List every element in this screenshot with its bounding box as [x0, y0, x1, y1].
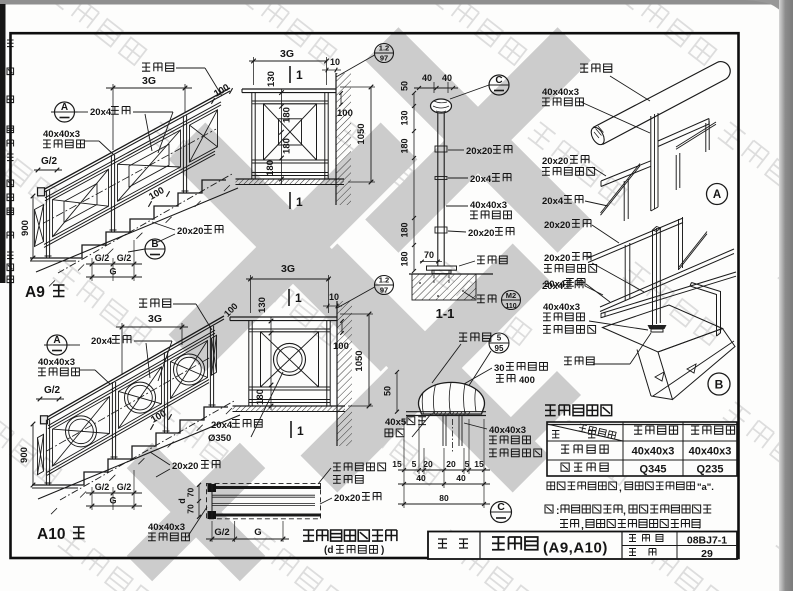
svg-text:C: C [495, 75, 502, 86]
svg-text:130: 130 [400, 110, 410, 125]
svg-text:20x20: 20x20 [334, 493, 360, 504]
svg-text:1.2: 1.2 [379, 44, 389, 53]
svg-text:50: 50 [400, 81, 410, 91]
svg-text:"a".: "a". [697, 482, 714, 493]
svg-text:40: 40 [422, 73, 432, 83]
svg-text:,: , [581, 520, 584, 532]
svg-text:400: 400 [519, 375, 535, 386]
svg-text:130: 130 [257, 297, 268, 313]
svg-text:40x40x3: 40x40x3 [632, 446, 675, 458]
svg-text:1: 1 [295, 291, 302, 305]
svg-text:G/2: G/2 [95, 253, 110, 263]
svg-text:70: 70 [424, 250, 434, 260]
svg-text:(A9,A10): (A9,A10) [543, 540, 608, 557]
svg-text:1: 1 [296, 68, 303, 82]
svg-text:A10: A10 [37, 526, 65, 543]
svg-text:20x20: 20x20 [468, 228, 494, 239]
svg-text:40x40x3: 40x40x3 [689, 446, 732, 458]
svg-text:20x20: 20x20 [177, 226, 203, 237]
svg-text:50: 50 [383, 386, 393, 396]
svg-text:180: 180 [255, 389, 266, 405]
svg-text:100: 100 [333, 341, 349, 352]
svg-text:(d: (d [324, 545, 333, 556]
svg-text:G: G [254, 527, 261, 538]
svg-text:B: B [151, 239, 158, 250]
svg-text:A: A [61, 102, 68, 113]
svg-text:29: 29 [701, 548, 713, 560]
svg-text:30: 30 [494, 363, 505, 374]
svg-text:40x40x3: 40x40x3 [489, 425, 526, 436]
svg-text:180: 180 [400, 138, 410, 153]
svg-text:G/2: G/2 [214, 527, 229, 538]
svg-text:20x4: 20x4 [211, 420, 233, 431]
svg-text:20x4: 20x4 [91, 336, 113, 347]
svg-text:180: 180 [282, 107, 293, 123]
svg-text:1050: 1050 [354, 350, 365, 371]
svg-text:20: 20 [446, 459, 456, 469]
svg-text:A9: A9 [25, 284, 45, 301]
svg-text:180: 180 [282, 138, 293, 154]
svg-text:A: A [53, 335, 60, 346]
svg-text:900: 900 [19, 447, 30, 463]
svg-text:130: 130 [266, 71, 277, 87]
svg-text:20x20: 20x20 [466, 146, 492, 157]
svg-text:Ø350: Ø350 [208, 433, 231, 444]
svg-text:20x20: 20x20 [172, 461, 198, 472]
svg-text:80: 80 [439, 493, 449, 503]
svg-text:180: 180 [265, 160, 276, 176]
svg-text:G/2: G/2 [41, 156, 58, 167]
svg-text:20x4: 20x4 [542, 196, 564, 207]
svg-text:900: 900 [20, 220, 31, 236]
svg-text:110: 110 [505, 303, 516, 310]
svg-text:20x4: 20x4 [90, 107, 112, 118]
svg-text:40x40x3: 40x40x3 [542, 87, 579, 98]
svg-text:20x4: 20x4 [542, 281, 564, 292]
svg-text:A: A [713, 189, 721, 201]
svg-text:1: 1 [297, 424, 304, 438]
svg-text:.: . [698, 520, 701, 532]
svg-text:95: 95 [495, 344, 504, 353]
svg-text:1050: 1050 [356, 123, 367, 144]
svg-text:5: 5 [497, 334, 502, 343]
svg-text:180: 180 [400, 251, 410, 266]
svg-text:97: 97 [380, 54, 388, 63]
svg-text:Q345: Q345 [640, 464, 667, 476]
svg-text:40x40x3: 40x40x3 [38, 357, 75, 368]
svg-text:3G: 3G [281, 263, 295, 275]
svg-text:G/2: G/2 [44, 385, 61, 396]
svg-text:40: 40 [456, 473, 466, 483]
svg-text:G/2: G/2 [117, 482, 132, 492]
svg-text:40x5: 40x5 [385, 417, 407, 428]
svg-text:40: 40 [442, 73, 452, 83]
svg-text:,: , [623, 505, 626, 517]
svg-text:20: 20 [423, 459, 433, 469]
svg-text:40: 40 [416, 473, 426, 483]
svg-text:d: d [177, 498, 187, 504]
svg-text:20x4: 20x4 [470, 174, 492, 185]
svg-text:3G: 3G [148, 313, 162, 325]
svg-text:3G: 3G [280, 48, 294, 60]
svg-text:G/2: G/2 [117, 253, 132, 263]
svg-text:15: 15 [392, 459, 402, 469]
svg-text:): ) [381, 545, 384, 556]
svg-text:5: 5 [412, 459, 417, 469]
svg-text:40x40x3: 40x40x3 [470, 200, 507, 211]
svg-text:15: 15 [474, 459, 484, 469]
svg-text:70: 70 [186, 488, 196, 498]
svg-text:20x20: 20x20 [542, 156, 568, 167]
svg-text:,: , [619, 483, 622, 494]
svg-text:40x40x3: 40x40x3 [543, 302, 580, 313]
svg-text::: : [556, 505, 560, 517]
svg-text:M2: M2 [506, 291, 516, 300]
svg-text:G/2: G/2 [95, 482, 110, 492]
svg-text:C: C [497, 501, 505, 513]
svg-text:1-1: 1-1 [436, 306, 455, 321]
svg-text:40x40x3: 40x40x3 [43, 129, 80, 140]
svg-text:20x20: 20x20 [544, 220, 570, 231]
svg-text:3G: 3G [142, 75, 156, 87]
svg-text:10: 10 [330, 57, 340, 67]
svg-text:40x40x3: 40x40x3 [148, 522, 185, 533]
svg-text:10: 10 [329, 292, 339, 302]
svg-text:70: 70 [186, 504, 196, 514]
svg-text:97: 97 [380, 286, 388, 295]
svg-text:B: B [715, 378, 724, 392]
svg-text:Q235: Q235 [697, 464, 724, 476]
svg-text:100: 100 [337, 108, 353, 119]
svg-text:1.2: 1.2 [379, 276, 389, 285]
svg-text:180: 180 [400, 222, 410, 237]
svg-text:20x20: 20x20 [544, 253, 570, 264]
svg-text:08BJ7-1: 08BJ7-1 [687, 535, 727, 547]
svg-text:1: 1 [296, 195, 303, 209]
